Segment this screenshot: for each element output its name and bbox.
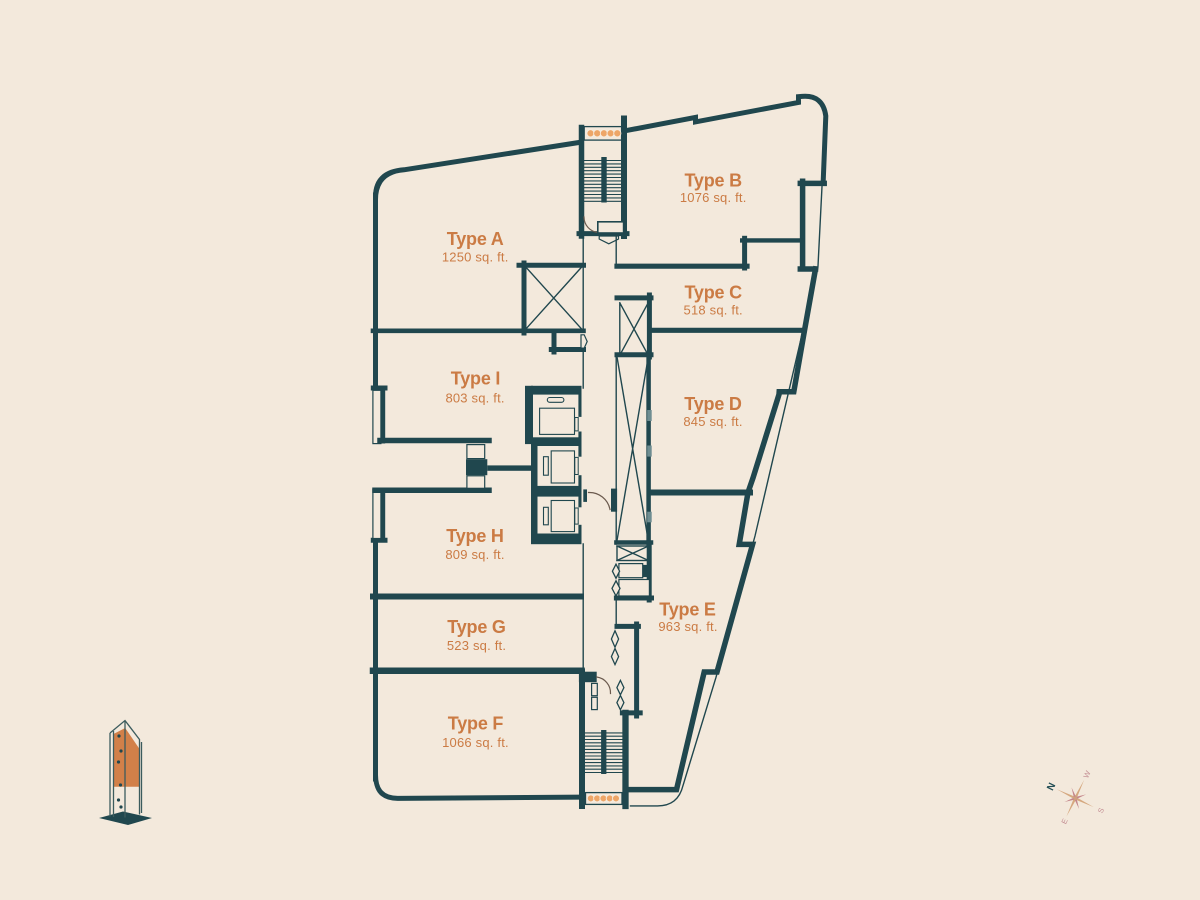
svg-text:1066 sq. ft.: 1066 sq. ft.: [442, 735, 509, 750]
svg-text:Type F: Type F: [448, 713, 504, 733]
svg-text:845 sq. ft.: 845 sq. ft.: [683, 414, 742, 429]
svg-text:803 sq. ft.: 803 sq. ft.: [445, 391, 504, 406]
svg-text:963 sq. ft.: 963 sq. ft.: [658, 619, 717, 634]
svg-text:518 sq. ft.: 518 sq. ft.: [684, 302, 743, 317]
svg-text:1076 sq. ft.: 1076 sq. ft.: [680, 190, 747, 205]
svg-text:809 sq. ft.: 809 sq. ft.: [445, 547, 504, 562]
svg-text:Type A: Type A: [447, 229, 504, 249]
svg-text:Type I: Type I: [451, 369, 500, 389]
svg-text:Type E: Type E: [659, 600, 716, 620]
svg-text:1250 sq. ft.: 1250 sq. ft.: [442, 249, 509, 264]
svg-text:523 sq. ft.: 523 sq. ft.: [447, 638, 506, 653]
svg-text:Type B: Type B: [684, 170, 742, 190]
svg-text:Type C: Type C: [684, 282, 742, 302]
svg-text:Type H: Type H: [446, 526, 503, 546]
svg-text:Type D: Type D: [684, 394, 742, 414]
svg-text:Type G: Type G: [447, 617, 505, 637]
